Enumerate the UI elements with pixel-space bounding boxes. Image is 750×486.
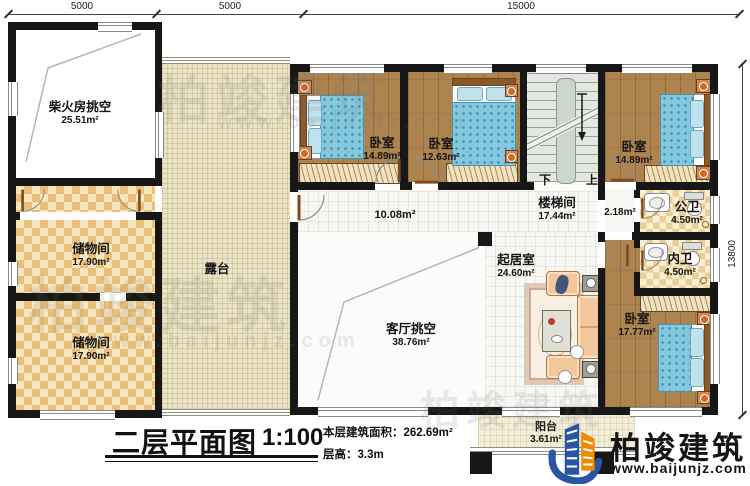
nightstand — [505, 150, 518, 163]
lamp-icon — [700, 315, 709, 324]
pillow — [457, 87, 483, 101]
nightstand — [696, 79, 711, 93]
door-arc-icon — [640, 248, 664, 272]
toilet-tank — [682, 242, 702, 250]
pillow — [690, 328, 704, 357]
room-label-bathroom-public: 公卫4.50m² — [671, 200, 703, 227]
lamp-icon — [507, 153, 516, 162]
wall — [598, 64, 605, 200]
pillow — [690, 130, 704, 158]
door-arc-icon — [604, 242, 630, 268]
title-underline — [105, 455, 318, 462]
lamp-icon — [300, 149, 309, 158]
window — [710, 314, 720, 384]
lamp-icon — [699, 169, 708, 178]
dimension-label: 5000 — [71, 1, 93, 12]
window — [710, 248, 720, 282]
wall — [438, 182, 534, 190]
floor-height-note: 层高：3.3m — [323, 446, 384, 462]
room-label-livingvoid: 客厅挑空38.76m² — [386, 322, 436, 349]
stairs-up-label: 上 — [586, 171, 598, 188]
toilet-tank — [684, 192, 704, 200]
wall — [634, 272, 640, 288]
wall — [290, 182, 375, 190]
lamp-icon — [300, 83, 309, 92]
room-label-storage-2: 储物间17.90m² — [72, 336, 110, 363]
room-label-living: 起居室24.60m² — [497, 253, 535, 280]
bed-blanket — [658, 324, 692, 392]
window — [40, 410, 115, 420]
wall — [155, 22, 162, 186]
pillow — [308, 100, 322, 126]
window — [8, 82, 18, 116]
lamp-icon — [507, 87, 516, 96]
nightstand — [297, 80, 312, 94]
door-arc-icon — [296, 192, 326, 222]
dimension-label: 5000 — [219, 1, 241, 12]
door-arc-icon — [640, 196, 664, 220]
dimension-line-top — [8, 14, 740, 15]
wall — [634, 240, 640, 248]
window — [8, 262, 18, 286]
wall — [290, 222, 298, 415]
window — [710, 196, 720, 224]
wall — [598, 268, 605, 415]
terrace-railing — [162, 57, 290, 64]
window — [290, 94, 300, 152]
wardrobe — [640, 294, 712, 312]
room-label-bedroom-4: 卧室17.77m² — [618, 312, 655, 339]
window — [318, 407, 428, 417]
window — [8, 358, 18, 384]
wall — [520, 64, 527, 190]
lamp-icon — [699, 82, 708, 91]
nightstand — [696, 166, 711, 180]
lamp-icon — [586, 364, 596, 374]
window — [310, 64, 384, 74]
logo-website: www.baijunjz.com — [610, 460, 747, 476]
window — [622, 64, 692, 74]
stairs-down-label: 下 — [539, 171, 551, 188]
door-arc-icon — [116, 187, 142, 213]
room-label-stairwell: 楼梯间17.44m² — [538, 196, 576, 223]
room-label-bedroom-2: 卧室12.63m² — [422, 137, 459, 164]
wall — [8, 22, 162, 30]
pillow — [690, 100, 704, 128]
dimension-tick — [738, 410, 747, 419]
terrace-railing — [162, 409, 290, 416]
side-table — [582, 361, 599, 378]
lamp-icon — [700, 394, 709, 403]
dimension-line-right — [742, 64, 743, 415]
column — [470, 452, 492, 474]
floor-area-note: 本层建筑面积：262.69m² — [323, 424, 453, 440]
wall — [634, 288, 718, 296]
room-label-chaihuofang: 柴火房挑空25.51m² — [49, 100, 112, 127]
wall — [598, 232, 605, 242]
logo-icon — [544, 416, 602, 484]
coffee-table — [542, 310, 571, 352]
scale-label: 1:100 — [262, 424, 323, 452]
flower-icon — [548, 318, 555, 325]
room-label-terrace: 露台 — [204, 262, 229, 277]
wall — [8, 178, 162, 186]
room-terrace — [162, 64, 290, 409]
void-outline-icon — [298, 232, 485, 407]
wall — [8, 212, 20, 220]
pillow — [690, 358, 704, 387]
dish-icon — [551, 335, 563, 343]
room-label-bathroom-private: 内卫4.50m² — [664, 252, 696, 279]
wall — [8, 293, 100, 301]
column — [478, 232, 492, 246]
bed-blanket — [660, 94, 694, 166]
window — [155, 112, 164, 158]
nightstand — [505, 84, 518, 97]
ottoman — [558, 370, 572, 384]
wardrobe — [446, 163, 518, 184]
room-label-bedroom-3: 卧室14.89m² — [615, 140, 652, 167]
dimension-label: 13800 — [727, 240, 738, 268]
side-table — [582, 275, 599, 292]
ottoman — [570, 345, 584, 359]
dimension-label: 15000 — [507, 1, 535, 12]
stairs-break-arrow-icon — [527, 72, 598, 182]
window — [444, 64, 492, 74]
floor-drain-icon — [700, 277, 707, 284]
wall — [636, 182, 718, 190]
hallway-area-label: 2.18m² — [604, 207, 636, 219]
room-label-storage-1: 储物间17.90m² — [72, 242, 110, 269]
bed-blanket — [320, 95, 364, 159]
window — [98, 22, 132, 32]
floor-plan: 5000 5000 15000 13800 — [0, 0, 750, 486]
room-label-bedroom-1: 卧室14.89m² — [363, 136, 400, 163]
window — [710, 94, 720, 160]
window — [536, 64, 586, 74]
wall — [634, 222, 640, 232]
door-arc-icon — [20, 187, 46, 213]
window — [630, 407, 702, 417]
corridor-area-label: 10.08m² — [375, 209, 416, 222]
lamp-icon — [586, 278, 596, 288]
dimension-tick — [735, 9, 744, 18]
wall — [155, 212, 162, 418]
wall — [632, 232, 718, 240]
